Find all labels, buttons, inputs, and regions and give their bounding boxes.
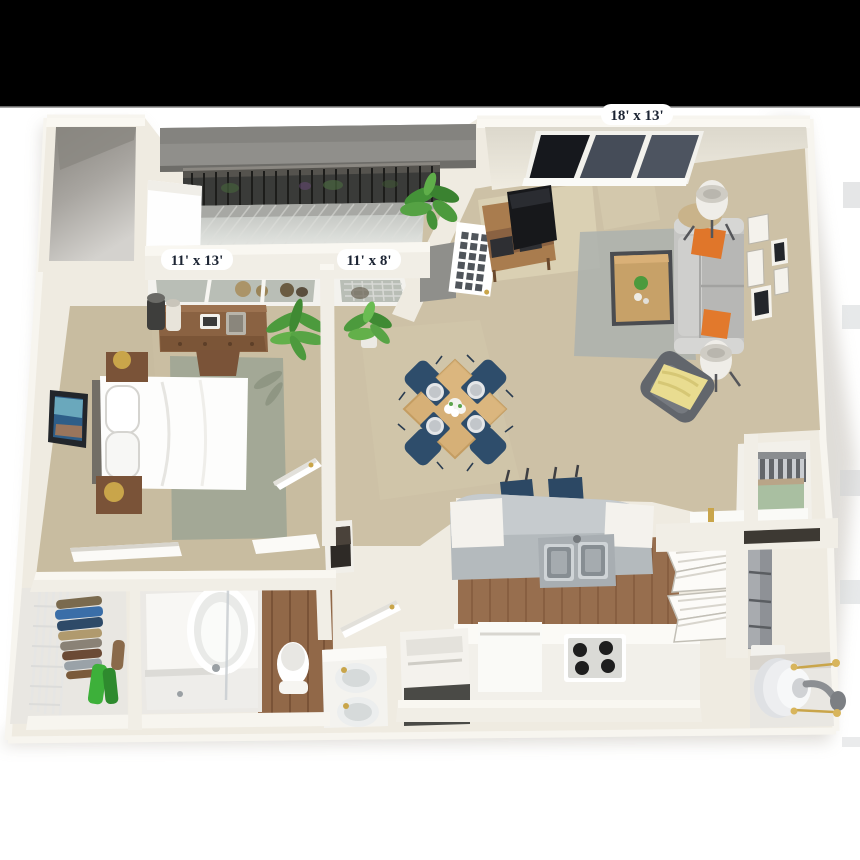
svg-text:11' x 13': 11' x 13' — [171, 253, 224, 269]
svg-text:18' x 13': 18' x 13' — [610, 108, 663, 124]
svg-text:11' x 8': 11' x 8' — [346, 253, 391, 269]
